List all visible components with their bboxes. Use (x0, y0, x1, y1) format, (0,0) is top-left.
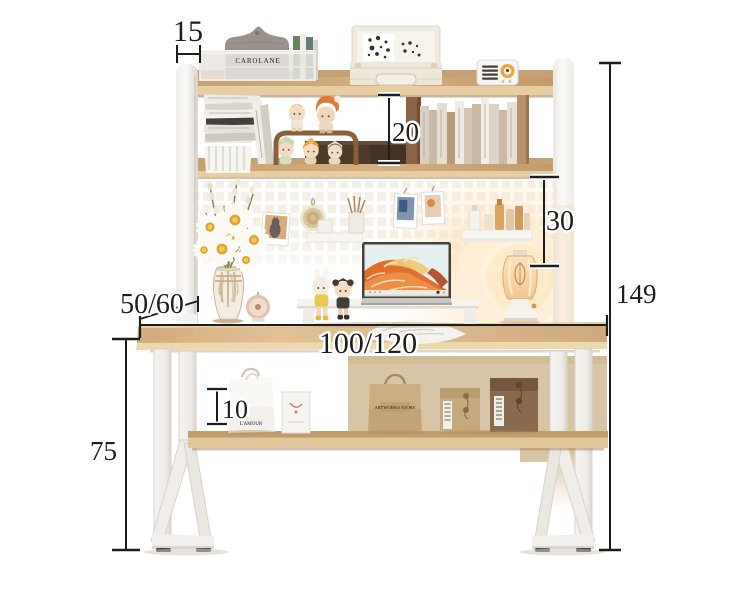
svg-text:CAROLANE: CAROLANE (235, 57, 280, 65)
svg-text:30: 30 (546, 206, 574, 237)
svg-text:100/120: 100/120 (319, 327, 417, 360)
svg-text:15: 15 (173, 15, 203, 48)
svg-text:10: 10 (222, 395, 248, 424)
svg-text:50/60: 50/60 (120, 289, 184, 320)
svg-text:149: 149 (616, 279, 657, 309)
svg-text:20: 20 (392, 117, 419, 147)
svg-text:75: 75 (90, 436, 117, 466)
svg-text:ARTWORKS STORE: ARTWORKS STORE (374, 405, 415, 410)
